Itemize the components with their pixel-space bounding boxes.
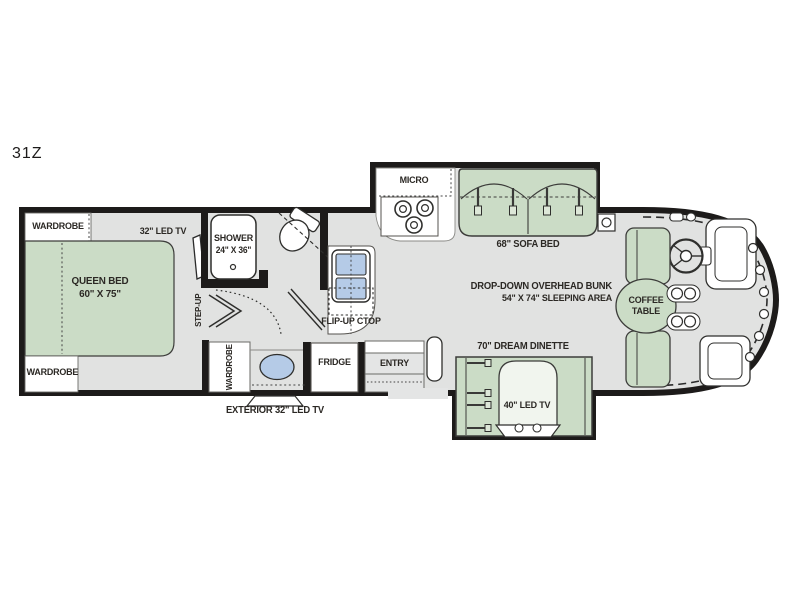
bunk-label-line2: 54" X 74" SLEEPING AREA — [464, 294, 612, 304]
rear-wardrobe-label: WARDROBE — [27, 368, 77, 378]
driver-seat — [706, 219, 756, 289]
fridge-label: FRIDGE — [312, 358, 356, 368]
shower-label-line2: 24" X 36" — [212, 246, 254, 255]
mid-wardrobe-label: WARDROBE — [225, 344, 234, 391]
exterior-tv-label: EXTERIOR 32" LED TV — [205, 406, 346, 416]
flip-up-ctop-label: FLIP-UP CTOP — [319, 317, 383, 327]
passenger-seat — [700, 336, 750, 386]
sofa-bed-label: 68" SOFA BED — [481, 240, 575, 250]
bedroom-tv-label: 32" LED TV — [136, 227, 191, 237]
dinette-table-tv — [496, 361, 560, 437]
floorplan-drawing — [0, 0, 800, 600]
captain-chair-bottom — [626, 331, 670, 387]
entry-door-opening — [388, 388, 448, 399]
entry-label: ENTRY — [367, 359, 422, 369]
dinette-tv-label: 40" LED TV — [496, 401, 558, 411]
coffee-table-label-line2: TABLE — [620, 307, 673, 317]
shower-label-line1: SHOWER — [212, 234, 254, 244]
coffee-table-label-line1: COFFEE — [620, 296, 673, 306]
captain-chair-top — [626, 228, 670, 284]
front-wardrobe-label: WARDROBE — [27, 222, 89, 232]
sofa-bed — [459, 169, 597, 236]
speaker-box — [598, 214, 615, 231]
queen-bed-label-line1: QUEEN BED — [44, 276, 157, 287]
queen-bed-label-line2: 60" X 75" — [44, 289, 157, 300]
dashboard-items — [670, 213, 696, 221]
microwave-label: MICRO — [382, 176, 446, 186]
floorplan-model-code: 31Z — [12, 146, 43, 162]
bunk-label-line1: DROP-DOWN OVERHEAD BUNK — [464, 282, 612, 292]
entry-grab-handle — [427, 337, 442, 381]
step-up-label: STEP-UP — [194, 290, 203, 331]
floorplan-page: 31Z WARDROBE QUEEN BED 60" X 75" WARDROB… — [0, 0, 800, 600]
dinette-label: 70" DREAM DINETTE — [453, 342, 594, 352]
